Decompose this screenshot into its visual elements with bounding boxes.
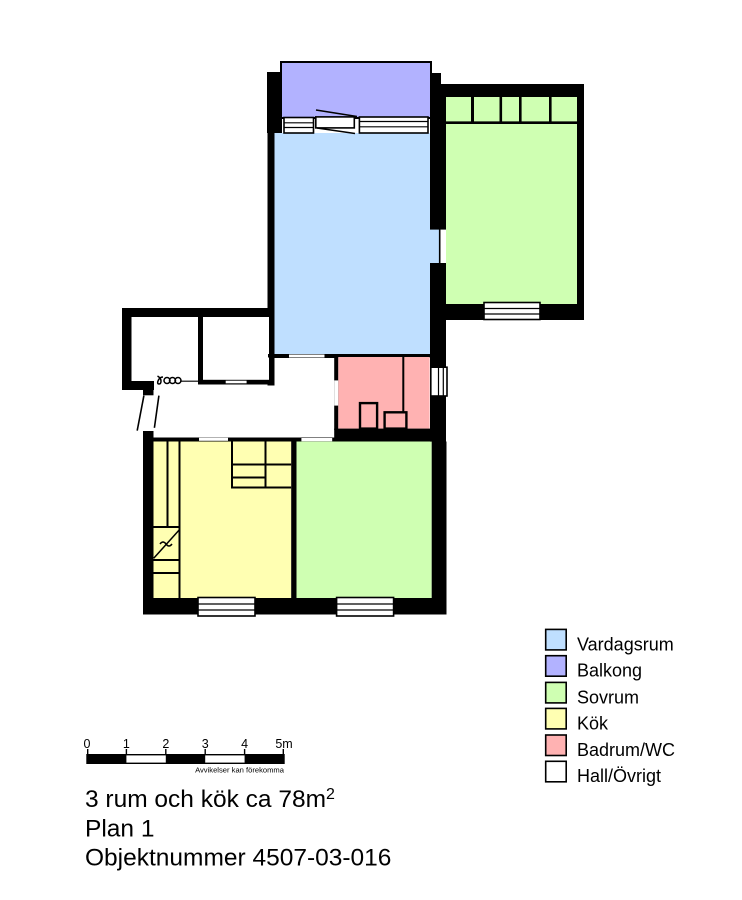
svg-text:Vardagsrum: Vardagsrum (577, 634, 674, 654)
svg-text:5m: 5m (275, 737, 292, 751)
svg-text:4: 4 (241, 737, 248, 751)
svg-text:Hall/Övrigt: Hall/Övrigt (577, 766, 661, 786)
svg-text:Avvikelser kan förekomma: Avvikelser kan förekomma (195, 766, 285, 775)
svg-text:Balkong: Balkong (577, 661, 642, 681)
svg-text:3: 3 (202, 737, 209, 751)
svg-text:0: 0 (84, 737, 91, 751)
svg-text:Badrum/WC: Badrum/WC (577, 740, 675, 760)
svg-text:2: 2 (162, 737, 169, 751)
svg-text:Kök: Kök (577, 713, 609, 733)
svg-text:3 rum och kök ca 78m2: 3 rum och kök ca 78m2 (85, 786, 335, 813)
svg-text:1: 1 (123, 737, 130, 751)
svg-text:Objektnummer 4507-03-016: Objektnummer 4507-03-016 (85, 845, 391, 872)
svg-text:Sovrum: Sovrum (577, 687, 639, 707)
svg-text:Plan 1: Plan 1 (85, 815, 154, 842)
